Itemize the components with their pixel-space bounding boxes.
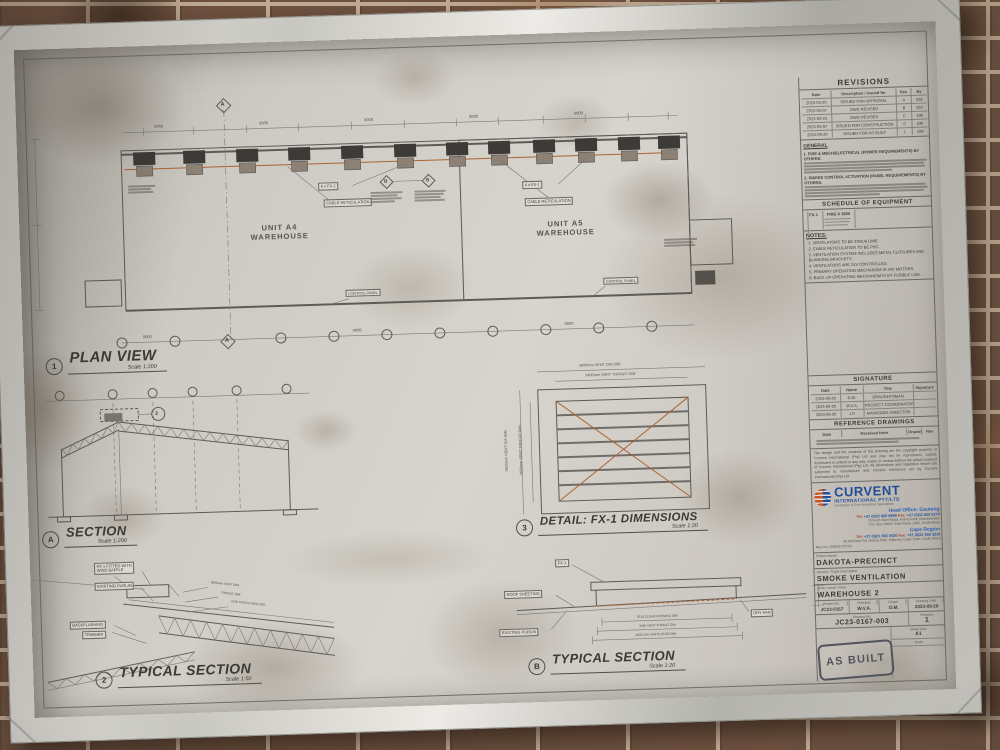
col-by: By: [911, 88, 926, 95]
company-block: CURVENT INTERNATIONAL PTY/LTD Ventilatio…: [812, 479, 943, 553]
fx-count-left-label: 6 x FX-1: [318, 182, 338, 190]
frame-mitre: [934, 0, 965, 24]
general-notes-section: GENERAL 1. FIRE & MECH/ELECTRICAL (POWER…: [801, 136, 932, 200]
checked-by: W.V.A.: [850, 604, 878, 612]
bay-dimension: 9000: [364, 117, 373, 122]
as-built-stamp: AS BUILT: [817, 639, 895, 681]
rev-rev: B: [897, 104, 912, 111]
frame-mitre: [0, 24, 14, 55]
sig-date: 2023-09-20: [811, 410, 841, 418]
rev-rev: C: [897, 112, 912, 119]
col-date: Date: [811, 386, 841, 394]
trimmer-label: TRIMMER: [82, 631, 106, 639]
fine-print-line: [415, 196, 441, 198]
section-cut-marker-b: B: [426, 177, 429, 182]
fine-print: [824, 218, 854, 226]
sig-name: J.P.: [841, 409, 864, 417]
typical-b-letter: B: [534, 662, 540, 671]
vent-symbol: [658, 135, 680, 149]
existing-purlin-label: EXISTING PURLIN: [499, 628, 539, 637]
section-cut-marker-b: B: [384, 179, 387, 184]
detail-ref-marker: 2: [155, 411, 158, 417]
project-no: JC23-0167: [817, 605, 848, 613]
vent-symbol: [618, 137, 640, 151]
fx1-label: FX-1: [555, 559, 569, 567]
sig-date: 2023-09-20: [811, 394, 841, 402]
bay-dimension: 9000: [353, 327, 362, 332]
col-drawing-no: Drawing No.: [907, 427, 922, 434]
bay-dimension: 9000: [574, 110, 583, 115]
rev-by: DM: [912, 96, 927, 103]
grid-marker-a-bottom: A: [225, 338, 229, 344]
plan-number-marker: 1: [45, 358, 63, 376]
frame-mitre: [6, 715, 37, 744]
control-panel-label: CONTROL PANEL: [603, 277, 638, 285]
schedule-model: FIRE-X 3600: [824, 211, 854, 217]
picture-frame: A A B B 9000 9000 9000 9000 9000 9000 90…: [0, 0, 982, 744]
sheet-size: A1: [892, 630, 944, 638]
revision-number: 1: [910, 616, 944, 624]
typical-section-b-drawing: FX-1 ROOF SHEETING EXISTING PURLIN DRY P…: [495, 545, 844, 696]
fine-print-line: [128, 185, 155, 187]
fine-print-line: [664, 244, 695, 247]
fine-print-line: [415, 199, 445, 202]
title-block: REVISIONS Date Description / Issued for …: [798, 73, 947, 681]
unit-a5-label: UNIT A5 WAREHOUSE: [529, 218, 602, 238]
rev-desc: ISSUED FOR AS BUILT: [833, 128, 898, 137]
bay-dimension: 9000: [154, 124, 163, 129]
col-rev: Rev: [896, 88, 911, 95]
fine-print-line: [371, 195, 398, 197]
rev-by: DM: [913, 128, 928, 135]
vent-symbol: [133, 152, 155, 166]
company-tagline: Ventilation & Fire Protection Specialist…: [834, 502, 900, 508]
fine-print: [414, 189, 448, 203]
rev-rev: 0: [897, 120, 912, 127]
dry-pan-label: DRY PAN: [751, 609, 774, 617]
vent-symbol: [341, 145, 363, 159]
notes-section: NOTES: 1. VENTILATORS TO BE ZINCALUME. 2…: [804, 227, 935, 283]
fine-print-line: [128, 188, 151, 190]
fine-print-line: [128, 191, 153, 193]
fx1-wind-baffle-label: FX-1 FITTED WITH WIND BAFFLE: [94, 562, 134, 575]
plan-view-drawing: A A B B 9000 9000 9000 9000 9000 9000 90…: [27, 74, 741, 396]
fine-print-line: [370, 191, 402, 194]
vent-symbol: [186, 164, 202, 174]
rev-date: 2023-09-20: [803, 131, 833, 139]
rev-rev: A: [897, 96, 912, 103]
vent-symbol: [288, 147, 310, 161]
revisions-section: REVISIONS Date Description / Issued for …: [799, 73, 930, 140]
sig-date: 2023-09-20: [811, 402, 841, 410]
title-block-footer: Sheet Size A1 Scale AS BUILT: [816, 625, 947, 681]
sig-signature: [914, 399, 937, 407]
fine-print-line: [824, 218, 851, 220]
sig-signature: [913, 391, 936, 399]
sig-name: W.V.A.: [841, 401, 864, 409]
bay-dimension: 9000: [143, 334, 152, 339]
fine-print-line: [371, 197, 402, 200]
fine-print: [804, 183, 929, 197]
vent-symbol: [291, 161, 307, 171]
vent-symbol: [136, 166, 152, 176]
vent-symbol: [239, 163, 255, 173]
vent-symbol: [578, 152, 594, 162]
truss-web: [61, 422, 120, 455]
drawing-number: JC23-0167-003: [817, 617, 907, 627]
fine-print: [664, 237, 700, 248]
sheet-meta: Sheet Size A1 Scale: [890, 625, 947, 679]
section-letter: A: [48, 535, 54, 544]
vent-symbol: [575, 138, 597, 152]
detail-number: 3: [522, 523, 527, 532]
vent-symbol: [344, 159, 360, 169]
scale-label: Scale: [893, 639, 945, 645]
rev-date: 2023-03-23: [802, 115, 832, 123]
vent-symbol: [183, 150, 205, 164]
title-block-blank-area: [805, 279, 937, 376]
project-info-block: Project Name DAKOTA-PRECINCT Service / T…: [814, 549, 947, 681]
typical-b-letter-marker: B: [528, 658, 546, 676]
vent-symbol: [394, 144, 416, 158]
col-date: Date: [801, 91, 831, 99]
rev-rev: 1: [898, 128, 913, 135]
copyright-disclaimer: The design and the contents of this draw…: [811, 445, 941, 483]
rev-date: 2023-03-07: [802, 107, 832, 115]
typical-2-number-marker: 2: [95, 671, 113, 689]
frame-mitre: [956, 684, 985, 715]
detail-fx1-drawing: 3600mm VENT O/A DIM 3400mm VENT THROAT D…: [509, 356, 735, 543]
grid-marker-a-top: A: [220, 102, 224, 108]
roof-sheeting-label: ROOF SHEETING: [504, 590, 542, 599]
typical-2-number: 2: [102, 676, 107, 685]
cable-reticulation-label: CABLE RETICULATION: [324, 198, 372, 207]
fine-print: [370, 190, 404, 204]
typical-section-b-caption: B TYPICAL SECTION Scale 1:20: [528, 647, 685, 675]
typical-section-2-drawing: FX-1 FITTED WITH WIND BAFFLE EXISTING PU…: [31, 535, 346, 705]
drawing-date: 2023-09-20: [909, 602, 943, 610]
signature-section: SIGNATURE Date Name Title Signature 2023…: [808, 372, 938, 420]
rev-date: 2023-02-20: [802, 99, 832, 107]
backflashing-label: BACKFLASHING: [70, 621, 106, 630]
tel-label: Tel:: [856, 515, 863, 519]
bay-dimension: 9000: [469, 114, 478, 119]
vent-symbol: [661, 149, 677, 159]
vent-symbol: [397, 158, 413, 168]
vent-symbol: [488, 141, 510, 155]
section-a-drawing: 2 A SECTION Scale 1:200: [29, 378, 334, 557]
vent-symbol: [446, 142, 468, 156]
drawn-by: D.M.: [881, 603, 907, 611]
rev-by: DM: [912, 112, 927, 119]
col-name: Name: [841, 385, 864, 393]
fine-print-line: [824, 221, 849, 223]
col-signature: Signature: [913, 383, 936, 391]
bay-dimension: 9000: [565, 321, 574, 326]
control-panel-label: CONTROL PANEL: [345, 289, 380, 297]
bay-dimension: 9000: [259, 120, 268, 125]
fine-print-line: [371, 201, 395, 203]
existing-purlin-label: EXISTING PURLIN: [95, 582, 135, 591]
vent-symbol: [236, 149, 258, 163]
curvent-logo-icon: [814, 488, 832, 506]
rev-date: 2023-05-07: [802, 123, 832, 131]
rev-by: DM: [912, 120, 927, 127]
drawing-sheet: A A B B 9000 9000 9000 9000 9000 9000 90…: [14, 21, 957, 718]
col-date: Date: [812, 430, 842, 438]
truss-web: [119, 417, 289, 454]
fine-print: [128, 184, 158, 195]
vent-symbol: [536, 153, 552, 163]
col-rev: Rev: [922, 427, 937, 434]
fine-print-line: [824, 224, 848, 226]
plan-number: 1: [52, 362, 57, 371]
schedule-section: SCHEDULE OF EQUIPMENT FX-1 FIRE-X 3600: [803, 197, 933, 231]
vent-symbol: [533, 139, 555, 153]
reference-drawings-section: REFERENCE DRAWINGS Date Received from Dr…: [810, 416, 940, 449]
sig-name: D.M.: [841, 393, 864, 401]
cable-reticulation-label: CABLE RETICULATION: [525, 197, 573, 206]
sig-signature: [914, 407, 937, 415]
vent-symbol: [449, 156, 465, 166]
sig-title: MANAGING DIRECTOR: [864, 408, 914, 417]
plan-view-caption: 1 PLAN VIEW Scale 1:200: [45, 347, 167, 376]
rev-by: DM: [912, 104, 927, 111]
vent-symbol: [621, 151, 637, 161]
unit-a4-label: UNIT A4 WAREHOUSE: [243, 222, 316, 242]
detail-number-marker: 3: [516, 519, 534, 537]
fx-count-right-label: 4 x FX-1: [522, 181, 542, 189]
